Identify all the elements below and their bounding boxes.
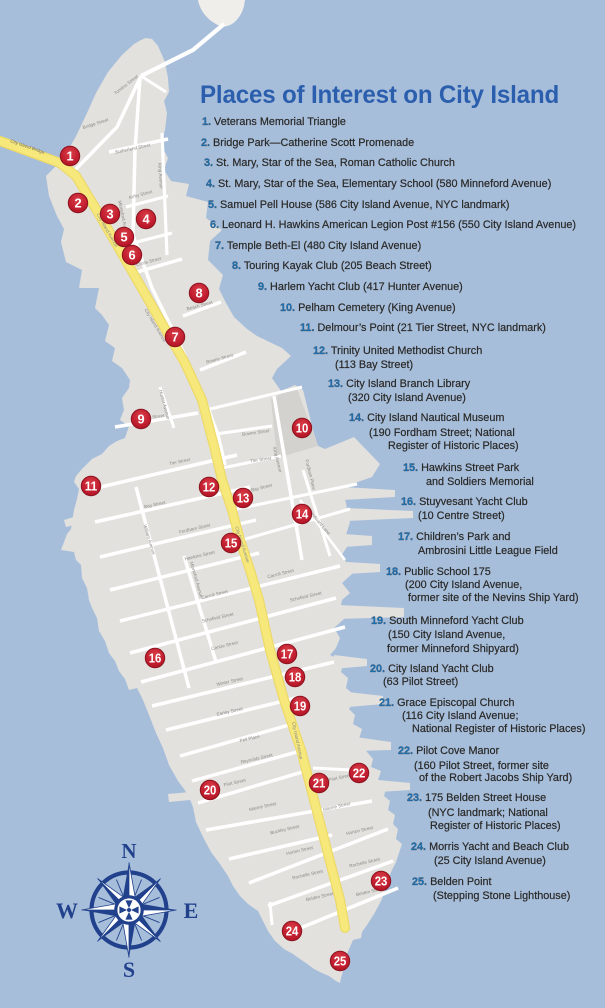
svg-text:21: 21	[313, 775, 326, 790]
svg-text:E: E	[184, 898, 199, 923]
svg-text:23: 23	[375, 873, 388, 888]
svg-text:7: 7	[171, 329, 178, 344]
svg-text:9: 9	[137, 411, 144, 426]
svg-text:18: 18	[289, 669, 302, 684]
svg-text:S: S	[123, 957, 135, 982]
svg-text:12: 12	[203, 479, 216, 494]
svg-text:11: 11	[85, 478, 98, 493]
svg-text:5: 5	[120, 229, 127, 244]
svg-text:22: 22	[353, 765, 366, 780]
svg-text:20: 20	[204, 782, 217, 797]
svg-text:1: 1	[66, 148, 73, 163]
svg-text:25: 25	[334, 953, 347, 968]
svg-text:15: 15	[225, 535, 238, 550]
svg-text:17: 17	[281, 646, 294, 661]
svg-text:2: 2	[74, 195, 81, 210]
svg-text:6: 6	[128, 247, 135, 262]
svg-text:19: 19	[294, 698, 307, 713]
svg-text:3: 3	[106, 206, 113, 221]
svg-text:14: 14	[296, 506, 309, 521]
svg-text:10: 10	[296, 420, 309, 435]
svg-text:N: N	[121, 839, 136, 863]
svg-text:8: 8	[195, 285, 202, 300]
svg-text:W: W	[56, 898, 78, 923]
svg-text:24: 24	[286, 923, 299, 938]
svg-text:16: 16	[149, 650, 162, 665]
svg-text:13: 13	[237, 490, 250, 505]
svg-text:4: 4	[142, 211, 150, 226]
